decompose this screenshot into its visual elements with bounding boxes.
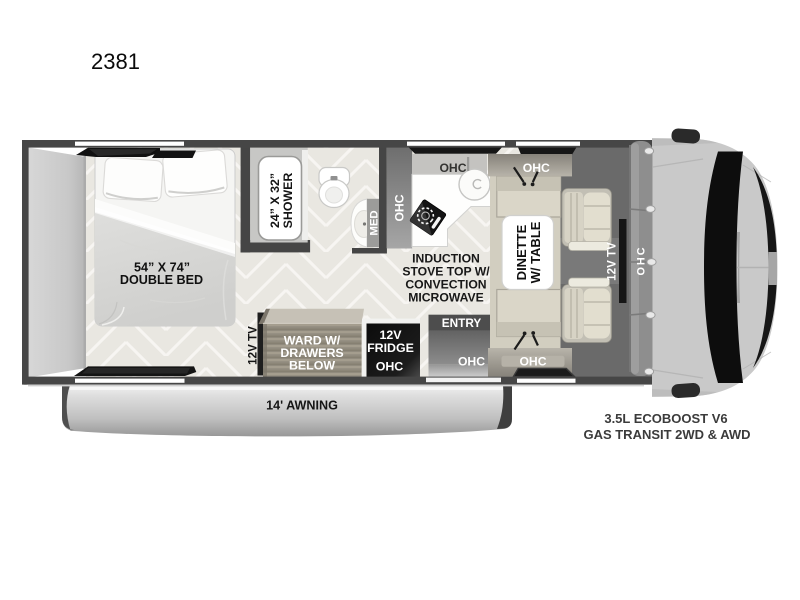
svg-text:STOVE TOP W/: STOVE TOP W/ [402, 265, 490, 279]
svg-text:OHC: OHC [519, 354, 546, 368]
svg-text:OHC: OHC [458, 355, 485, 369]
svg-text:W/ TABLE: W/ TABLE [528, 221, 543, 283]
svg-text:DOUBLE BED: DOUBLE BED [120, 273, 203, 287]
svg-text:3.5L ECOBOOST V6: 3.5L ECOBOOST V6 [604, 411, 727, 426]
svg-text:14' AWNING: 14' AWNING [266, 399, 338, 413]
svg-text:OHC: OHC [393, 194, 407, 221]
svg-text:MED: MED [369, 210, 381, 235]
svg-text:OHC: OHC [636, 246, 648, 276]
svg-text:MICROWAVE: MICROWAVE [408, 291, 484, 305]
svg-text:ENTRY: ENTRY [442, 316, 482, 330]
svg-text:12V TV: 12V TV [247, 326, 260, 365]
svg-text:OHC: OHC [376, 360, 404, 374]
svg-text:SHOWER: SHOWER [281, 173, 295, 229]
svg-text:OHC: OHC [439, 161, 466, 175]
svg-text:GAS TRANSIT 2WD & AWD: GAS TRANSIT 2WD & AWD [583, 427, 750, 442]
svg-text:12V: 12V [379, 328, 402, 342]
svg-text:2381: 2381 [91, 49, 140, 74]
svg-text:INDUCTION: INDUCTION [412, 252, 480, 266]
svg-text:BELOW: BELOW [289, 359, 335, 373]
svg-text:12V TV: 12V TV [606, 242, 619, 281]
svg-text:FRIDGE: FRIDGE [367, 341, 414, 355]
svg-text:DINETTE: DINETTE [514, 224, 529, 280]
svg-text:CONVECTION: CONVECTION [405, 278, 486, 292]
svg-text:24” X 32”: 24” X 32” [268, 173, 282, 228]
